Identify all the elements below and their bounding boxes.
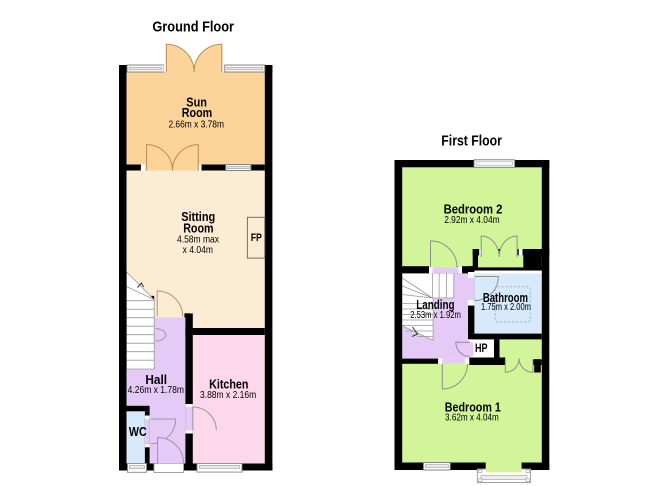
svg-text:3.62m x 4.04m: 3.62m x 4.04m xyxy=(445,413,499,424)
svg-text:2.66m x 3.78m: 2.66m x 3.78m xyxy=(168,119,224,130)
svg-text:4.26m x 1.78m: 4.26m x 1.78m xyxy=(128,385,184,396)
svg-text:2.53m x 1.92m: 2.53m x 1.92m xyxy=(410,310,461,321)
svg-text:Room: Room xyxy=(182,106,212,120)
svg-text:3.88m x 2.16m: 3.88m x 2.16m xyxy=(200,390,256,401)
svg-text:Room: Room xyxy=(183,221,213,235)
svg-text:x 4.04m: x 4.04m xyxy=(183,245,213,256)
svg-text:WC: WC xyxy=(129,425,147,439)
svg-text:HP: HP xyxy=(475,343,488,355)
svg-text:2.92m x 4.04m: 2.92m x 4.04m xyxy=(444,215,499,226)
svg-text:1.75m x 2.00m: 1.75m x 2.00m xyxy=(481,302,531,313)
svg-text:FP: FP xyxy=(251,232,263,244)
svg-text:First Floor: First Floor xyxy=(441,133,502,149)
svg-text:Ground Floor: Ground Floor xyxy=(152,20,234,36)
